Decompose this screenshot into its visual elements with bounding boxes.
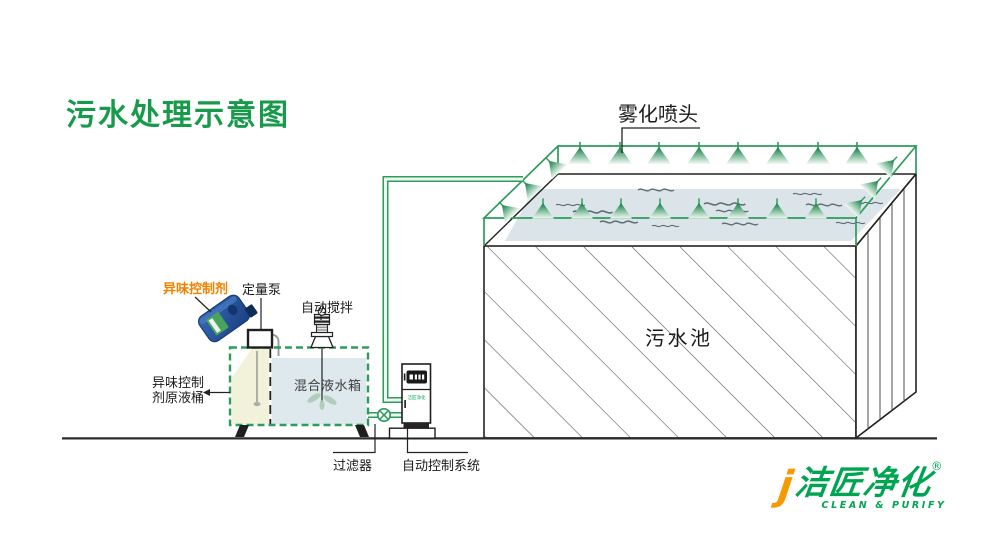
suction-foot [254, 402, 261, 406]
label-auto-stirring: 自动搅拌 [301, 300, 353, 316]
cabinet-handle [404, 400, 406, 408]
label-stock-solution-line1: 异味控制 [152, 376, 204, 391]
label-filter: 过滤器 [333, 459, 372, 474]
label-odor-control-agent: 异味控制剂 [163, 281, 228, 297]
logo-tagline: CLEAN & PURIFY [821, 500, 946, 511]
label-spray-nozzle: 雾化喷头 [618, 102, 698, 126]
label-metering-pump: 定量泵 [242, 283, 281, 298]
logo-brand-text: 洁匠净化 [793, 463, 938, 502]
label-sewage-pool: 污水池 [645, 326, 713, 350]
label-mixing-tank: 混合液水箱 [294, 378, 362, 394]
cabinet-platform [390, 428, 436, 438]
label-control-system: 自动控制系统 [402, 459, 480, 474]
metering-pump [248, 330, 272, 348]
diagram-canvas: 污水处理示意图 [0, 0, 1000, 533]
page-title: 污水处理示意图 [66, 98, 290, 133]
sewage-treatment-diagram: 污水处理示意图 [0, 0, 1000, 533]
label-stock-solution-line2: 剂原液桶 [152, 391, 204, 406]
cabinet-brand-mark: 洁匠净化 [408, 394, 426, 401]
logo-registered-mark: ® [931, 459, 943, 473]
filter-valve [378, 409, 390, 421]
